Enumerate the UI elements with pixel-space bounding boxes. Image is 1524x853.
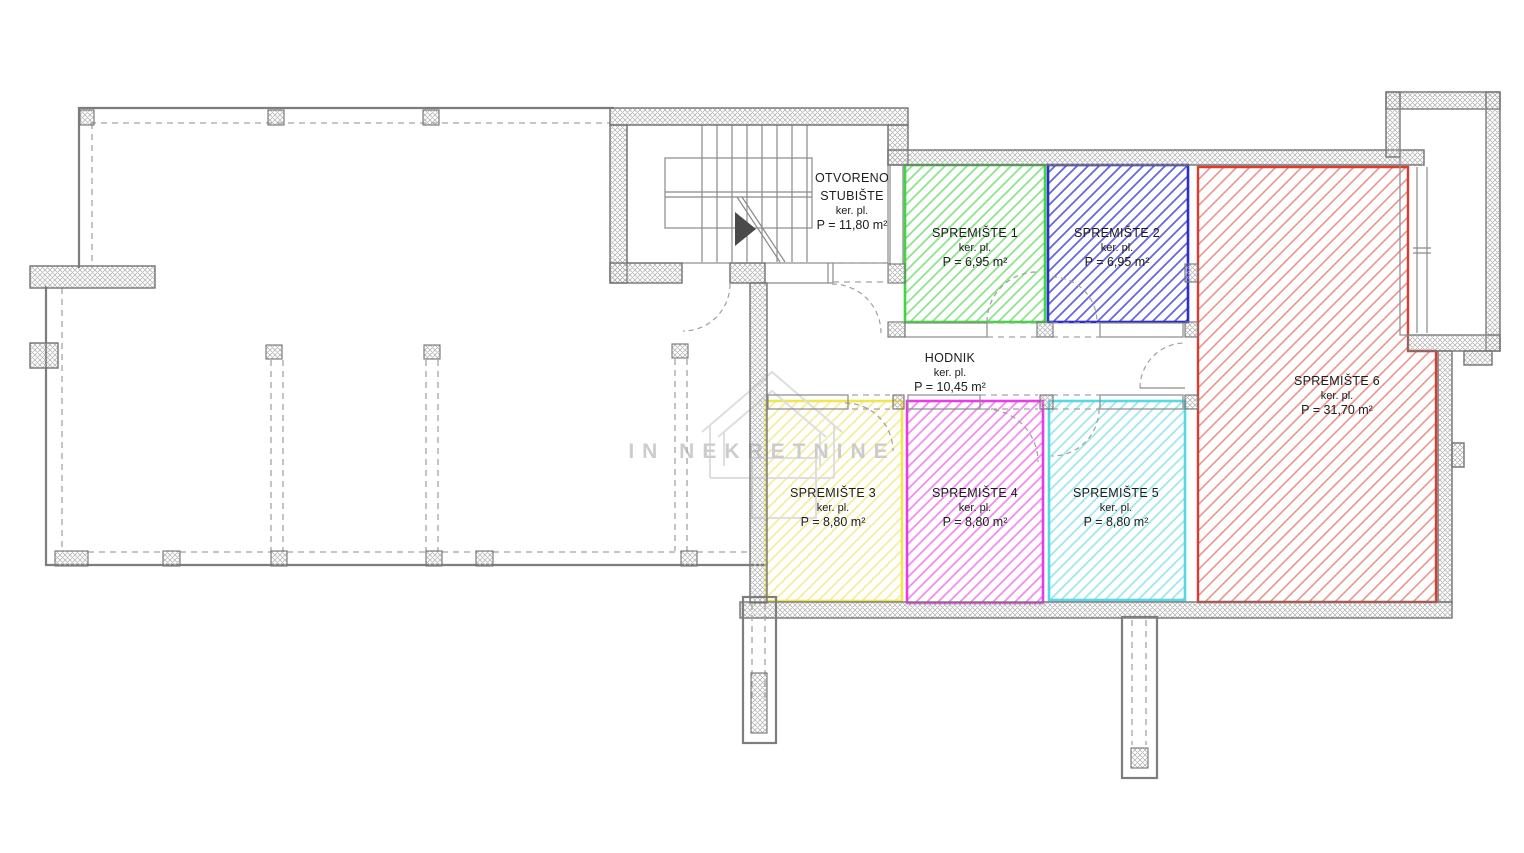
label-hodnik: HODNIK ker. pl. P = 10,45 m² [914,351,986,394]
left-wall-step [30,266,155,288]
storage-top-wall [888,150,1424,165]
shaft-top-wall [1386,92,1500,109]
right-wall-block [1452,443,1464,467]
storage-bottom-wall [740,602,1452,618]
room-area: P = 8,80 m² [801,515,866,529]
room-title: SPREMIŠTE 4 [932,485,1018,500]
room-title: STUBIŠTE [820,188,884,203]
window-symbol [1413,167,1431,333]
shaft-right-wall [1486,92,1500,351]
stair-bottom-wall-right [730,263,765,283]
room-spremiste-5 [1049,401,1185,600]
structural-columns [55,110,697,566]
left-wall-pier [30,343,58,368]
room-title: OTVORENO [815,171,889,185]
room-title: SPREMIŠTE 3 [790,485,876,500]
room-area: P = 11,80 m² [817,218,888,232]
shaft-bottom-wall [1408,335,1500,351]
shaft-left-wall [1386,92,1400,157]
floor-plan-canvas: IN NEKRETNINE [0,0,1524,853]
bottom-shaft-left [743,597,776,743]
stair-direction-arrow-icon [735,212,756,246]
light-shaft [1400,109,1486,335]
right-outer-wall [1438,351,1452,602]
room-area: P = 8,80 m² [943,515,1008,529]
room-floor-type: ker. pl. [836,205,868,217]
floor-plan: IN NEKRETNINE [0,0,1524,853]
bottom-shaft-right [1122,617,1157,778]
room-area: P = 6,95 m² [1085,255,1150,269]
right-step-wall [1464,351,1492,365]
room-floor-type: ker. pl. [934,367,966,379]
stair-left-wall [610,125,627,283]
hall-storage-divider-wall [750,283,767,603]
label-otvoreno-stubiste: OTVORENO STUBIŠTE ker. pl. P = 11,80 m² [815,171,889,232]
room-title: SPREMIŠTE 6 [1294,373,1380,388]
room-title: SPREMIŠTE 2 [1074,225,1160,240]
stair-top-wall [610,108,908,125]
staircase [627,125,888,283]
room-title: SPREMIŠTE 5 [1073,485,1159,500]
stair-treads [702,125,807,262]
door-arc-stair-to-corridor [832,284,881,333]
room-title: HODNIK [925,351,976,365]
room-floor-type: ker. pl. [1321,390,1353,402]
room-area: P = 8,80 m² [1084,515,1149,529]
left-hall [30,107,766,566]
room-floor-type: ker. pl. [1101,242,1133,254]
room-floor-type: ker. pl. [959,502,991,514]
door-arc-stair-to-hall [683,284,730,331]
room-floor-type: ker. pl. [1100,502,1132,514]
room-area: P = 31,70 m² [1301,403,1373,417]
room-floor-type: ker. pl. [959,242,991,254]
room-area: P = 10,45 m² [914,380,986,394]
door-arc-spremiste-6 [1140,343,1185,388]
room-title: SPREMIŠTE 1 [932,225,1018,240]
room-area: P = 6,95 m² [943,255,1008,269]
room-floor-type: ker. pl. [817,502,849,514]
stair-bottom-wall-left [610,263,682,283]
